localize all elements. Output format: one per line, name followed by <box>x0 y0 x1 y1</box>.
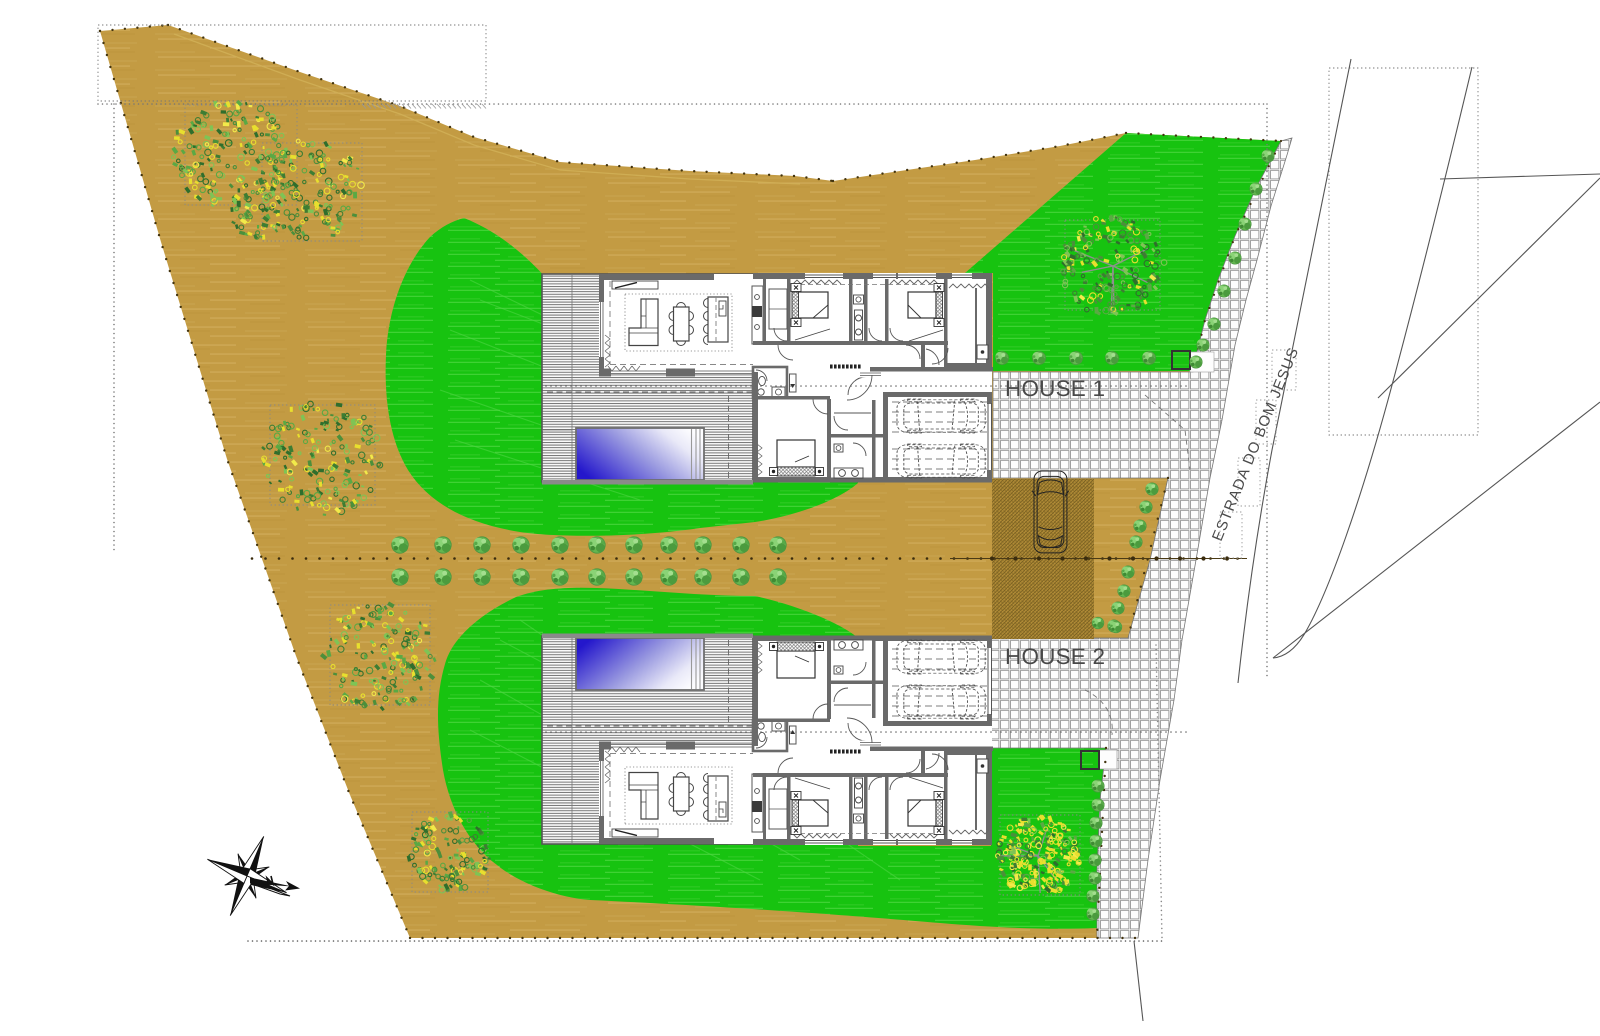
svg-text:HOUSE 2: HOUSE 2 <box>1005 644 1105 669</box>
svg-text:HOUSE 1: HOUSE 1 <box>1005 376 1105 401</box>
